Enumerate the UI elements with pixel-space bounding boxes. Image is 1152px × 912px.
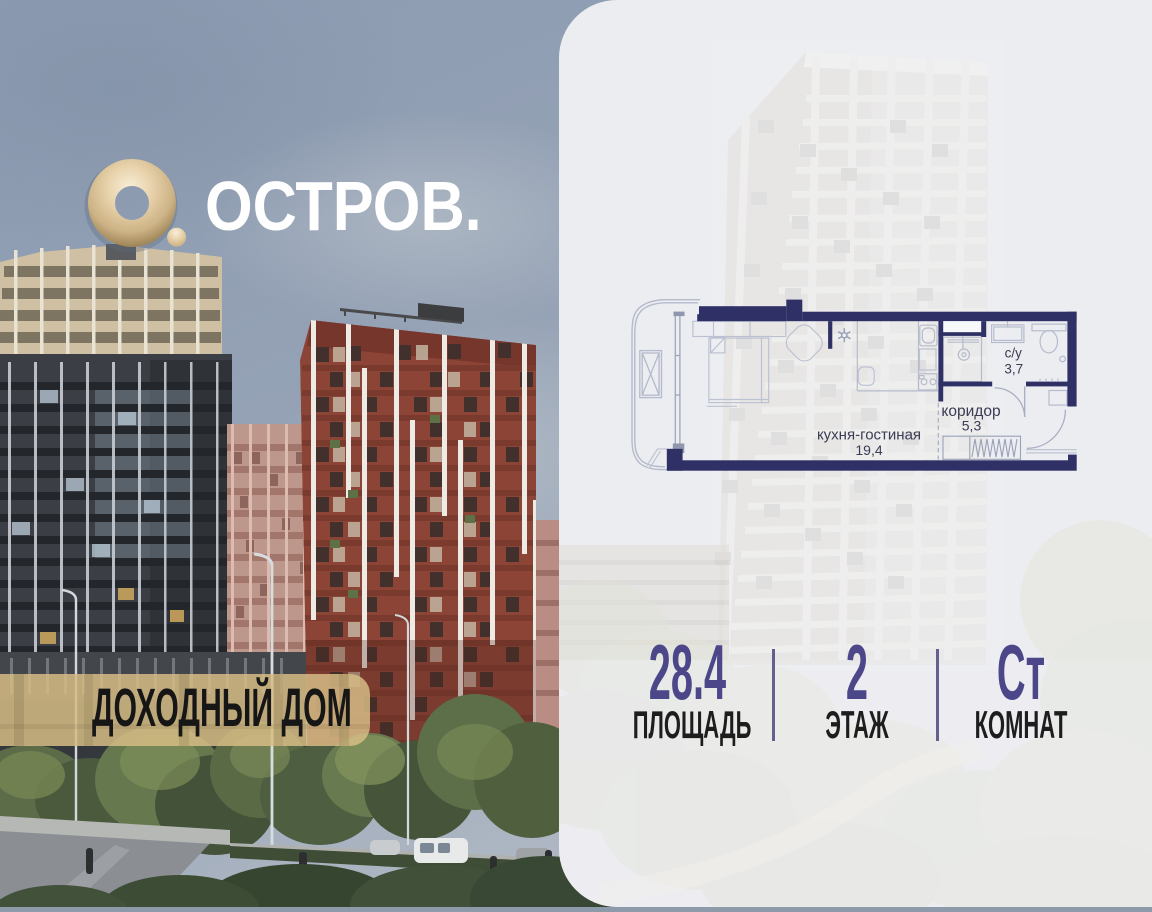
- svg-text:19,4: 19,4: [855, 442, 882, 458]
- svg-text:с/у: с/у: [1005, 346, 1023, 361]
- svg-text:3,7: 3,7: [1004, 362, 1023, 377]
- svg-text:5,3: 5,3: [962, 418, 982, 434]
- svg-text:кухня-гостиная: кухня-гостиная: [817, 427, 921, 444]
